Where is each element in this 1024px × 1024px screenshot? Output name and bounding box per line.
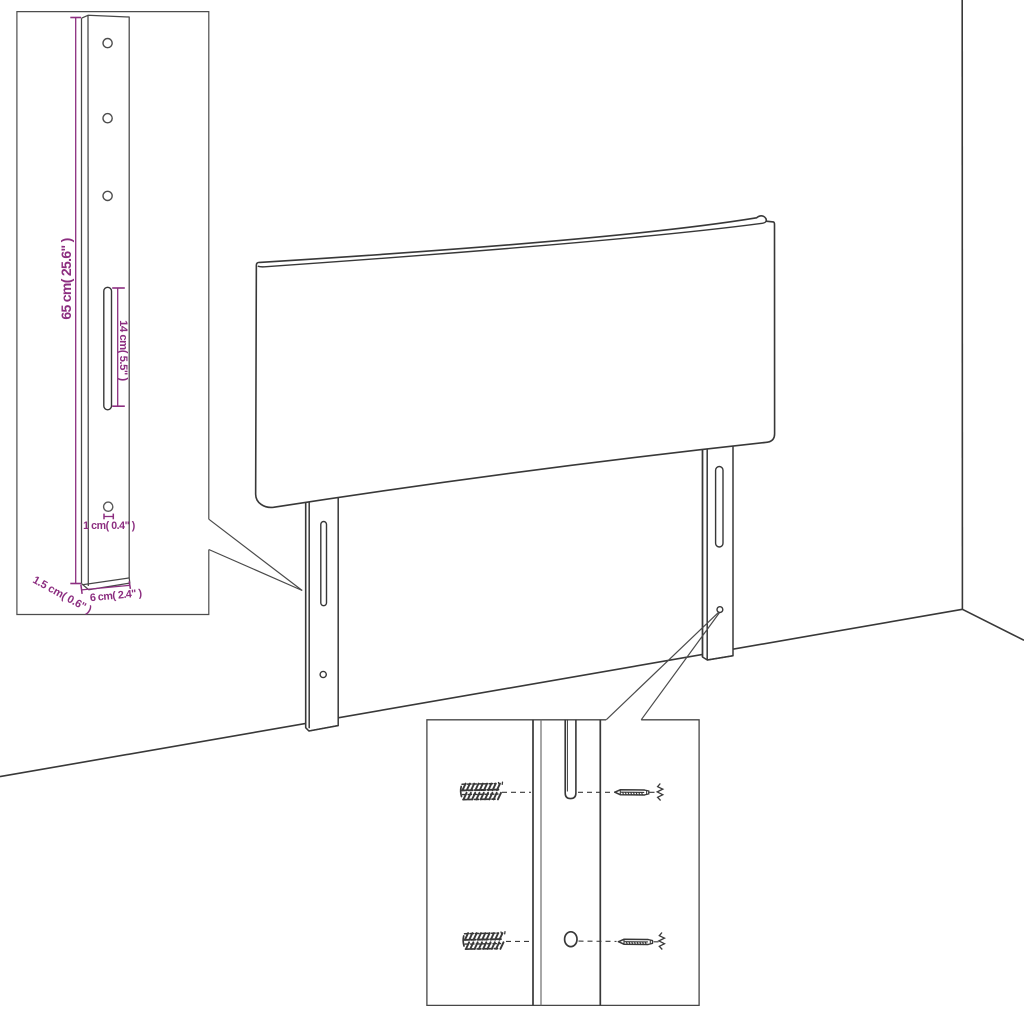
svg-text:14 cm( 5.5" ): 14 cm( 5.5" )	[117, 320, 129, 381]
svg-text:1 cm( 0.4" ): 1 cm( 0.4" )	[83, 520, 135, 532]
svg-text:65 cm( 25.6" ): 65 cm( 25.6" )	[58, 238, 74, 319]
